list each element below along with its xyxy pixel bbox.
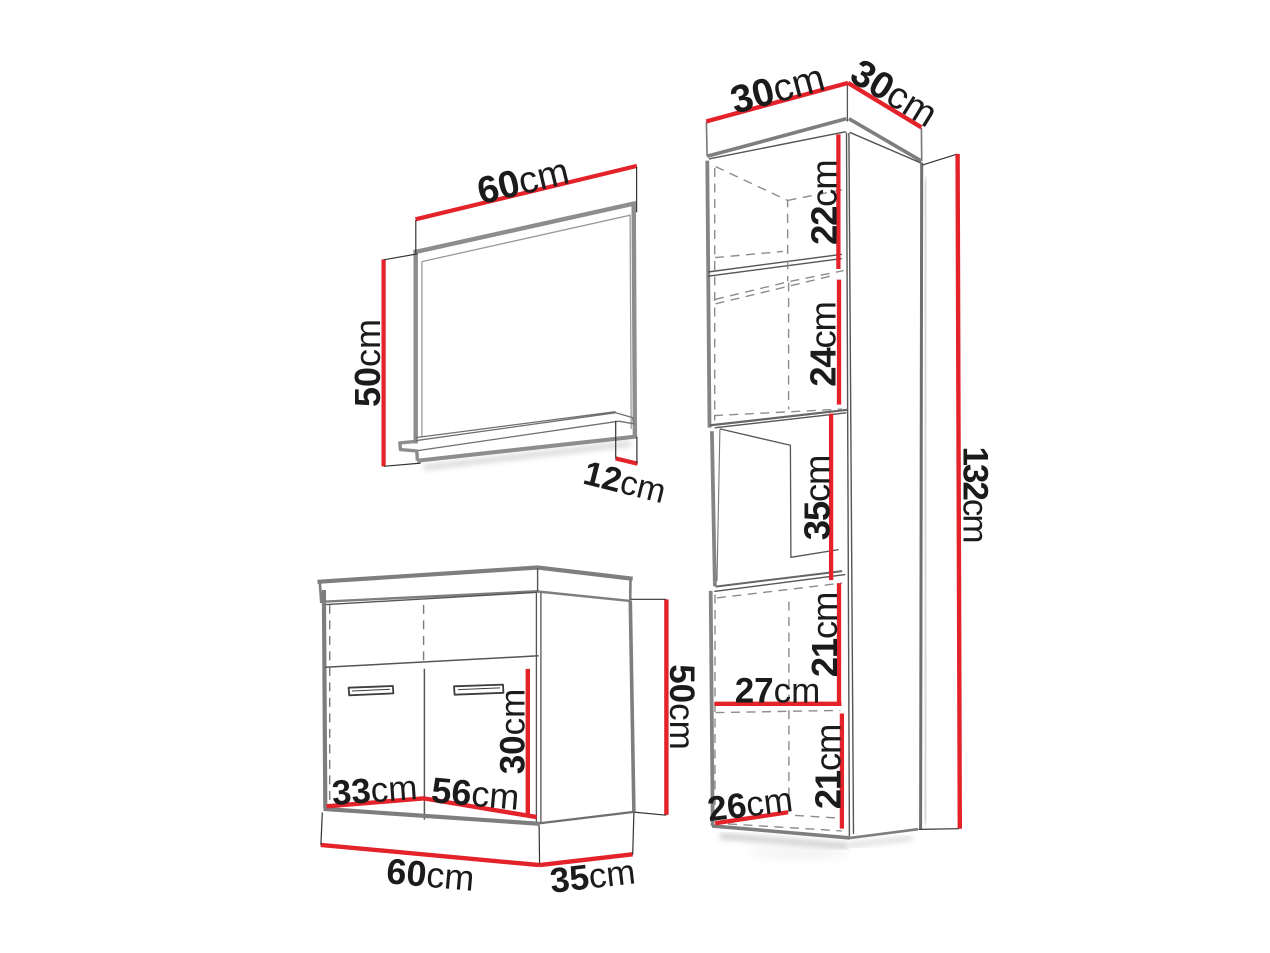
svg-text:21cm: 21cm [807,725,848,809]
svg-text:21cm: 21cm [804,593,845,677]
svg-text:35cm: 35cm [796,456,837,540]
svg-text:60cm: 60cm [385,850,476,899]
svg-text:22cm: 22cm [803,161,844,245]
svg-text:27cm: 27cm [735,672,821,711]
svg-text:33cm: 33cm [331,768,419,813]
svg-text:50cm: 50cm [347,319,388,407]
svg-text:56cm: 56cm [430,769,521,818]
svg-text:30cm: 30cm [494,689,533,775]
svg-text:132cm: 132cm [956,446,995,541]
svg-text:24cm: 24cm [802,302,843,386]
svg-text:50cm: 50cm [662,664,701,750]
